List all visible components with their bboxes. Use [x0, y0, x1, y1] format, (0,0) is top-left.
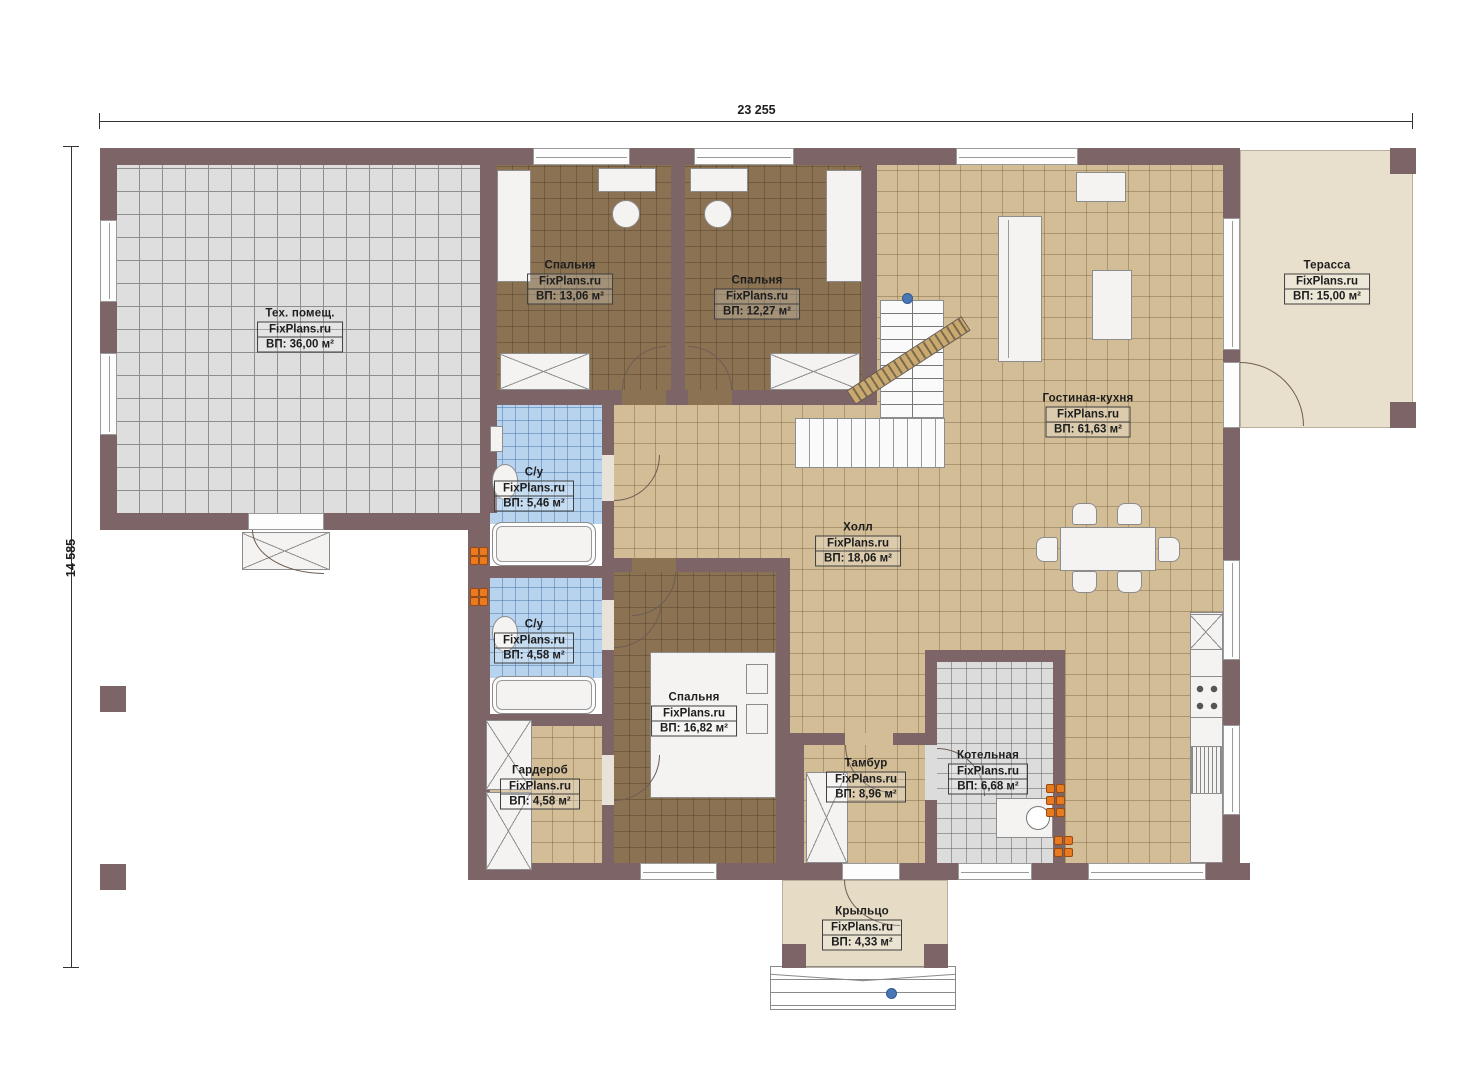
door-opening-tech	[248, 513, 324, 530]
window	[100, 220, 117, 302]
column-post	[100, 864, 126, 890]
dimension-tick	[63, 146, 79, 147]
wall-tambour-top	[790, 733, 845, 745]
radiator	[1064, 848, 1073, 857]
window	[1223, 560, 1240, 660]
dimension-label-height: 14 585	[64, 515, 78, 601]
dining-table	[1060, 527, 1156, 571]
room-area: ВП: 4,58 м²	[495, 649, 573, 663]
door-opening-bedroom1	[622, 390, 666, 405]
tv-stand	[1076, 172, 1126, 202]
radiator	[470, 556, 479, 565]
coffee-table	[1092, 270, 1132, 340]
room-label-living: Гостиная-кухня FixPlans.ru ВП: 61,63 м²	[1043, 393, 1134, 438]
room-area: ВП: 16,82 м²	[652, 722, 736, 736]
radiator	[1056, 796, 1065, 805]
room-brand: FixPlans.ru	[823, 921, 901, 936]
room-name: Крыльцо	[835, 906, 889, 918]
wall-bedroom2-living	[862, 165, 877, 405]
room-name: Спальня	[544, 260, 595, 272]
radiator	[1056, 808, 1065, 817]
room-name: Спальня	[668, 692, 719, 704]
wall-tech-bottom	[100, 513, 248, 530]
entry-marker	[886, 988, 897, 999]
room-name: Гардероб	[512, 765, 568, 777]
room-brand: FixPlans.ru	[715, 290, 799, 305]
door-opening-tambour	[845, 733, 893, 745]
window	[533, 148, 630, 165]
room-brand: FixPlans.ru	[1046, 408, 1130, 423]
wall-tambour-left	[790, 733, 804, 863]
sofa	[998, 216, 1042, 362]
radiator	[1056, 784, 1065, 793]
radiator	[1054, 848, 1063, 857]
stairs-marker	[902, 293, 913, 304]
room-label-tambour: Тамбур FixPlans.ru ВП: 8,96 м²	[826, 758, 906, 803]
chair	[704, 200, 732, 228]
room-label-boiler: Котельная FixPlans.ru ВП: 6,68 м²	[948, 750, 1028, 795]
door-opening-wardrobe	[602, 755, 614, 805]
radiator	[470, 597, 479, 606]
wall-bathrooms-divider	[490, 566, 602, 578]
radiator	[470, 588, 479, 597]
room-area: ВП: 6,68 м²	[949, 780, 1027, 794]
door-opening-bathroom2	[602, 600, 614, 650]
room-info-box: FixPlans.ru ВП: 61,63 м²	[1045, 407, 1131, 438]
door-opening-terrace	[1223, 362, 1240, 428]
wall-bedroom3-right	[776, 558, 790, 863]
room-info-box: FixPlans.ru ВП: 18,06 м²	[815, 536, 901, 567]
chair	[1158, 537, 1180, 562]
room-info-box: FixPlans.ru ВП: 36,00 м²	[257, 322, 343, 353]
radiator	[479, 547, 488, 556]
sink	[490, 426, 503, 452]
room-info-box: FixPlans.ru ВП: 15,00 м²	[1284, 274, 1370, 305]
room-area: ВП: 36,00 м²	[258, 338, 342, 352]
door-opening-bedroom3	[632, 558, 676, 572]
room-area: ВП: 4,33 м²	[823, 936, 901, 950]
room-area: ВП: 8,96 м²	[827, 788, 905, 802]
room-info-box: FixPlans.ru ВП: 4,58 м²	[494, 633, 574, 664]
room-name: Холл	[843, 522, 873, 534]
wall-bathroom2-right	[602, 572, 614, 600]
room-name: Спальня	[731, 275, 782, 287]
column-post	[1390, 148, 1416, 174]
pillow	[746, 704, 768, 734]
room-brand: FixPlans.ru	[652, 707, 736, 722]
wall-boiler-left	[925, 800, 937, 863]
bathtub	[492, 676, 596, 714]
floor-plan-canvas: 23 255 14 585	[0, 0, 1474, 1080]
room-name: Котельная	[957, 750, 1019, 762]
room-brand: FixPlans.ru	[501, 780, 579, 795]
window	[1223, 218, 1240, 350]
stove	[1190, 676, 1223, 718]
chair	[1036, 537, 1058, 562]
chair	[1117, 503, 1142, 525]
wall-boiler-left	[925, 650, 937, 745]
wardrobe-cabinet	[500, 353, 590, 390]
room-brand: FixPlans.ru	[495, 482, 573, 497]
window	[956, 148, 1078, 165]
room-info-box: FixPlans.ru ВП: 13,06 м²	[527, 274, 613, 305]
room-brand: FixPlans.ru	[258, 323, 342, 338]
window	[640, 863, 717, 880]
window	[1088, 863, 1206, 880]
room-label-bedroom2: Спальня FixPlans.ru ВП: 12,27 м²	[714, 275, 800, 320]
radiator	[1046, 796, 1055, 805]
window	[100, 353, 117, 435]
chair	[1072, 503, 1097, 525]
room-area: ВП: 18,06 м²	[816, 552, 900, 566]
radiator	[1046, 808, 1055, 817]
room-label-porch: Крыльцо FixPlans.ru ВП: 4,33 м²	[822, 906, 902, 951]
radiator	[470, 547, 479, 556]
desk	[598, 168, 656, 192]
room-brand: FixPlans.ru	[816, 537, 900, 552]
radiator	[1054, 836, 1063, 845]
closet	[826, 170, 862, 282]
room-brand: FixPlans.ru	[827, 773, 905, 788]
door-opening-entrance	[842, 863, 900, 880]
room-label-bath2: С/у FixPlans.ru ВП: 4,58 м²	[494, 619, 574, 664]
bathtub	[492, 522, 596, 566]
room-info-box: FixPlans.ru ВП: 12,27 м²	[714, 289, 800, 320]
room-brand: FixPlans.ru	[949, 765, 1027, 780]
room-label-bedroom3: Спальня FixPlans.ru ВП: 16,82 м²	[651, 692, 737, 737]
room-name: С/у	[525, 467, 544, 479]
dimension-line-top	[100, 121, 1413, 122]
wall-bedrooms-bottom	[480, 390, 877, 405]
room-info-box: FixPlans.ru ВП: 16,82 м²	[651, 706, 737, 737]
room-area: ВП: 61,63 м²	[1046, 423, 1130, 437]
wall-bathroom2-right	[602, 650, 614, 755]
room-label-bedroom1: Спальня FixPlans.ru ВП: 13,06 м²	[527, 260, 613, 305]
stairs-lower-flight	[795, 418, 945, 468]
room-brand: FixPlans.ru	[1285, 275, 1369, 290]
dimension-label-width: 23 255	[100, 103, 1413, 117]
room-brand: FixPlans.ru	[495, 634, 573, 649]
wall-bathroom1-right	[602, 501, 614, 558]
wall-bedroom3-top	[602, 558, 632, 572]
room-info-box: FixPlans.ru ВП: 5,46 м²	[494, 481, 574, 512]
wall-wardrobe-right	[602, 805, 614, 863]
radiator	[479, 588, 488, 597]
room-info-box: FixPlans.ru ВП: 8,96 м²	[826, 772, 906, 803]
room-label-tech: Тех. помещ. FixPlans.ru ВП: 36,00 м²	[257, 308, 343, 353]
room-label-wardrobe: Гардероб FixPlans.ru ВП: 4,58 м²	[500, 765, 580, 810]
room-area: ВП: 15,00 м²	[1285, 290, 1369, 304]
room-info-box: FixPlans.ru ВП: 6,68 м²	[948, 764, 1028, 795]
room-label-terrace: Терасса FixPlans.ru ВП: 15,00 м²	[1284, 260, 1370, 305]
radiator	[1046, 784, 1055, 793]
pillow	[746, 664, 768, 694]
chair	[1117, 571, 1142, 593]
wall-between-bedrooms	[671, 165, 685, 390]
room-name: Тамбур	[845, 758, 888, 770]
fridge	[1191, 746, 1222, 794]
room-brand: FixPlans.ru	[528, 275, 612, 290]
desk	[690, 168, 748, 192]
room-area: ВП: 13,06 м²	[528, 290, 612, 304]
door-opening-boiler	[925, 745, 937, 800]
room-area: ВП: 12,27 м²	[715, 305, 799, 319]
chair	[1072, 571, 1097, 593]
chair	[612, 200, 640, 228]
porch-steps	[770, 966, 956, 1010]
window	[694, 148, 794, 165]
wall-exterior-left	[100, 148, 117, 530]
room-label-bath1: С/у FixPlans.ru ВП: 5,46 м²	[494, 467, 574, 512]
window	[1223, 725, 1240, 815]
radiator	[479, 597, 488, 606]
dimension-tick	[63, 967, 79, 968]
column-post	[924, 944, 948, 968]
kitchen-sink	[1190, 614, 1223, 650]
wall-boiler-top	[925, 650, 1065, 662]
closet	[497, 170, 531, 282]
room-info-box: FixPlans.ru ВП: 4,33 м²	[822, 920, 902, 951]
room-label-hall: Холл FixPlans.ru ВП: 18,06 м²	[815, 522, 901, 567]
room-name: С/у	[525, 619, 544, 631]
wall-bathroom1-right	[602, 405, 614, 455]
room-area: ВП: 4,58 м²	[501, 795, 579, 809]
room-name: Тех. помещ.	[265, 308, 334, 320]
wall-tech-right	[480, 148, 497, 513]
window	[958, 863, 1032, 880]
room-name: Гостиная-кухня	[1043, 393, 1134, 405]
column-post	[100, 686, 126, 712]
wall-tech-bottom	[324, 513, 490, 530]
room-info-box: FixPlans.ru ВП: 4,58 м²	[500, 779, 580, 810]
wall-bedroom3-top	[676, 558, 790, 572]
door-opening-bathroom1	[602, 455, 614, 501]
column-post	[1390, 402, 1416, 428]
room-area: ВП: 5,46 м²	[495, 497, 573, 511]
column-post	[782, 944, 806, 968]
door-opening-bedroom2	[688, 390, 732, 405]
radiator	[1064, 836, 1073, 845]
radiator	[479, 556, 488, 565]
wall-boiler-right	[1053, 650, 1065, 863]
wardrobe-cabinet	[770, 353, 860, 390]
room-name: Терасса	[1304, 260, 1351, 272]
